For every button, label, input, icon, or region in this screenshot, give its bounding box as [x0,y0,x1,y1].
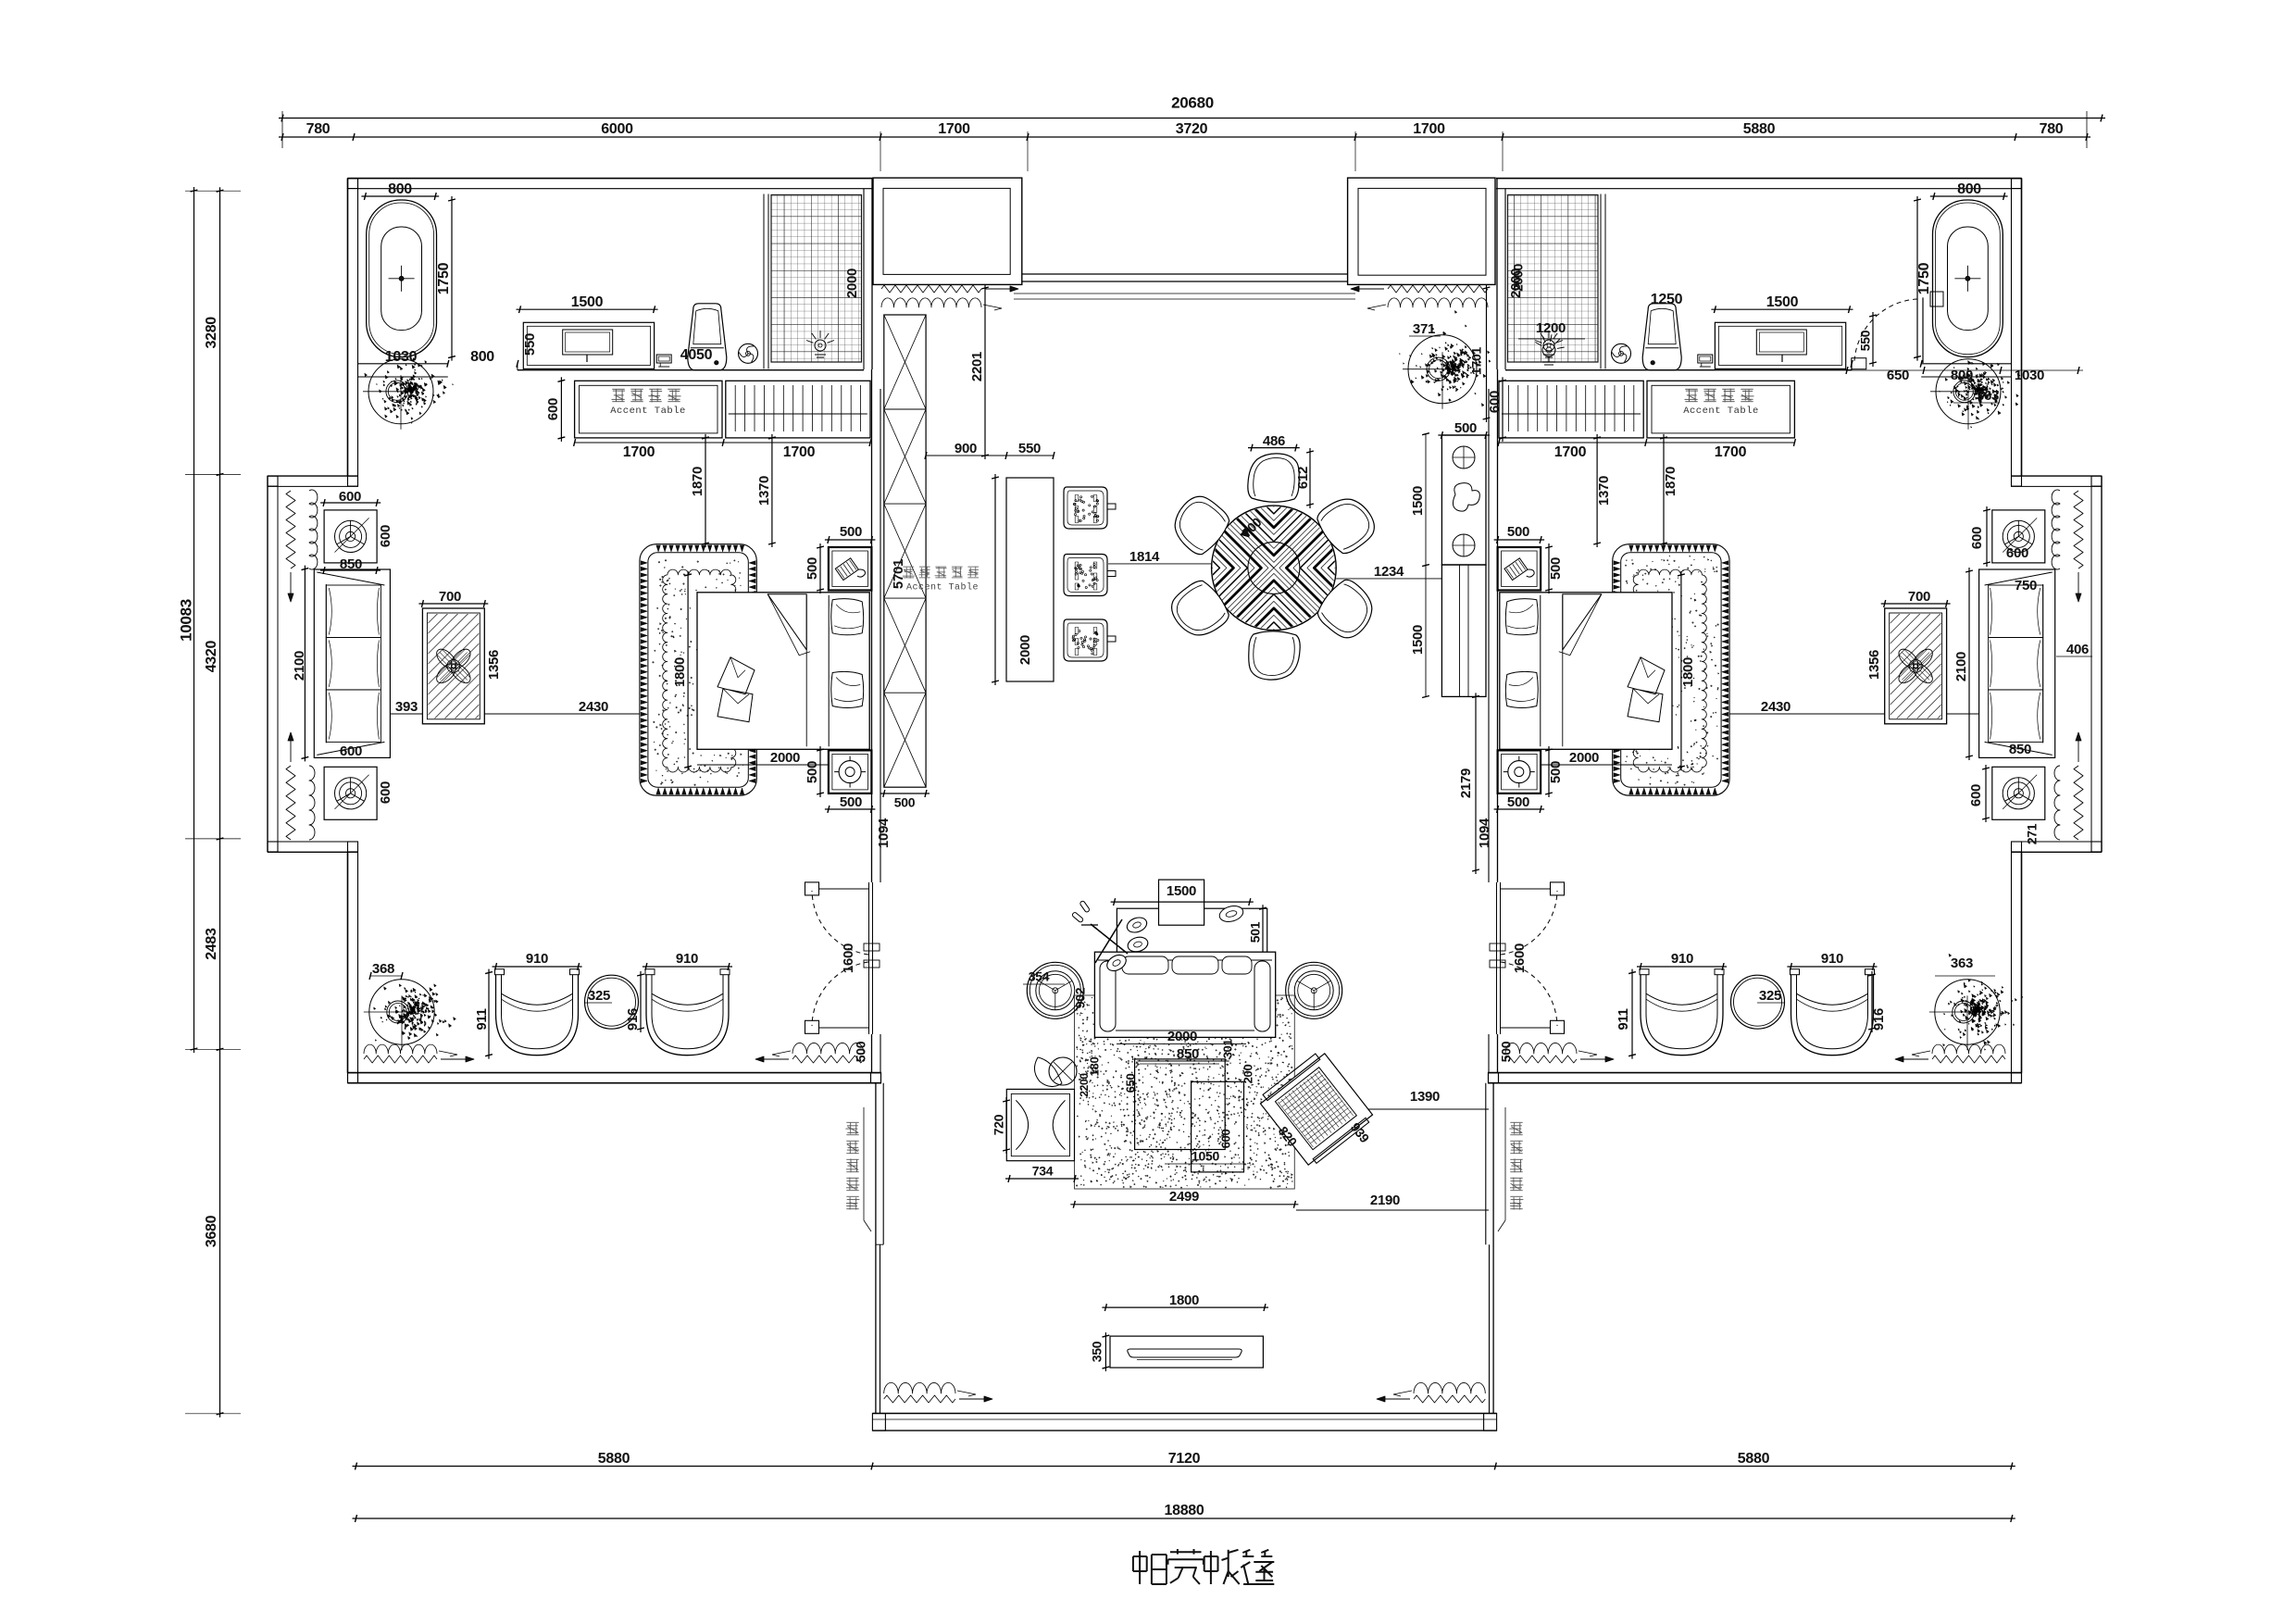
svg-text:1050: 1050 [1192,1149,1219,1164]
svg-text:910: 910 [1821,951,1843,967]
svg-text:500: 500 [840,794,862,810]
svg-text:10083: 10083 [177,599,194,642]
svg-text:1750: 1750 [1916,262,1932,294]
svg-text:550: 550 [1858,330,1873,351]
svg-text:2430: 2430 [1761,699,1791,715]
svg-text:7120: 7120 [1168,1451,1201,1467]
svg-text:2499: 2499 [1169,1189,1199,1205]
svg-text:916: 916 [1871,1008,1887,1031]
svg-text:1234: 1234 [1374,564,1404,580]
svg-text:800: 800 [388,181,412,197]
svg-text:911: 911 [1616,1008,1631,1030]
svg-text:1356: 1356 [1866,650,1882,680]
svg-text:3680: 3680 [204,1215,219,1247]
svg-text:486: 486 [1263,433,1285,449]
svg-text:500: 500 [854,1041,868,1062]
svg-text:1750: 1750 [436,262,452,294]
svg-text:3280: 3280 [204,317,219,349]
svg-text:600: 600 [1487,391,1503,413]
svg-text:1250: 1250 [1651,292,1683,307]
svg-text:700: 700 [439,589,461,605]
svg-text:916: 916 [625,1008,641,1031]
svg-text:1870: 1870 [1663,467,1678,496]
svg-text:371: 371 [1413,321,1435,337]
svg-text:500: 500 [805,761,820,783]
svg-text:600: 600 [378,781,393,804]
svg-text:900: 900 [955,441,977,456]
svg-text:612: 612 [1295,467,1311,489]
svg-text:500: 500 [1548,761,1564,783]
svg-text:1800: 1800 [1169,1293,1199,1308]
svg-text:2000: 2000 [844,269,860,298]
svg-text:600: 600 [340,743,362,759]
svg-text:Accent Table: Accent Table [906,582,979,593]
svg-text:2190: 2190 [1370,1193,1400,1208]
svg-text:500: 500 [894,795,916,810]
svg-text:1701: 1701 [1469,347,1484,375]
svg-text:1370: 1370 [1596,476,1612,506]
svg-text:500: 500 [1454,420,1477,436]
svg-text:1500: 1500 [1167,883,1196,899]
svg-text:393: 393 [395,699,418,715]
svg-text:500: 500 [840,524,862,540]
svg-text:2483: 2483 [204,928,219,960]
svg-text:500: 500 [805,557,820,580]
svg-text:600: 600 [1218,1130,1232,1149]
svg-text:500: 500 [1507,794,1529,810]
svg-text:1700: 1700 [783,444,816,460]
svg-text:1700: 1700 [1715,444,1747,460]
svg-text:734: 734 [1032,1164,1054,1179]
svg-text:2100: 2100 [1953,652,1969,681]
svg-text:4050: 4050 [680,347,713,363]
svg-text:911: 911 [474,1008,490,1030]
svg-text:1030: 1030 [2015,368,2044,383]
svg-text:20680: 20680 [1171,94,1214,111]
svg-text:1700: 1700 [1413,121,1445,137]
svg-text:600: 600 [545,398,561,420]
svg-text:5701: 5701 [891,559,906,589]
svg-text:600: 600 [1968,784,1984,806]
svg-text:Accent Table: Accent Table [1683,406,1759,417]
svg-text:650: 650 [1887,368,1909,383]
svg-text:1094: 1094 [876,818,892,848]
svg-text:1700: 1700 [938,121,970,137]
svg-text:902: 902 [1073,987,1088,1008]
svg-text:1500: 1500 [1766,294,1799,310]
svg-text:350: 350 [1090,1341,1104,1362]
svg-text:1700: 1700 [623,444,655,460]
svg-text:1870: 1870 [690,467,705,496]
svg-text:363: 363 [1977,388,1999,404]
svg-text:325: 325 [588,988,610,1004]
svg-text:2000: 2000 [1017,635,1033,665]
svg-text:1500: 1500 [1410,625,1426,655]
svg-text:354: 354 [1029,969,1050,984]
svg-text:910: 910 [526,951,548,967]
svg-text:5880: 5880 [1738,1451,1770,1467]
svg-text:1600: 1600 [1512,943,1528,973]
svg-text:2000: 2000 [1511,264,1526,292]
svg-text:1200: 1200 [1536,320,1566,336]
svg-text:800: 800 [1951,368,1973,383]
svg-text:1700: 1700 [1554,444,1587,460]
svg-text:5880: 5880 [1743,121,1776,137]
svg-text:2000: 2000 [1167,1029,1197,1044]
svg-text:650: 650 [1123,1074,1137,1093]
svg-text:780: 780 [306,121,331,137]
svg-text:501: 501 [1248,921,1263,943]
svg-text:2201: 2201 [969,352,985,381]
svg-text:910: 910 [676,951,698,967]
svg-text:4320: 4320 [204,641,219,673]
svg-text:180: 180 [1087,1057,1101,1077]
svg-text:3720: 3720 [1176,121,1208,137]
svg-text:301: 301 [1220,1040,1234,1059]
svg-text:500: 500 [1499,1041,1514,1062]
svg-text:600: 600 [2006,545,2028,561]
svg-text:2000: 2000 [770,750,800,766]
svg-text:368: 368 [372,961,394,977]
svg-text:780: 780 [2040,121,2064,137]
svg-text:406: 406 [2066,642,2089,657]
svg-text:271: 271 [2025,823,2040,844]
svg-text:850: 850 [2009,742,2031,757]
svg-text:2000: 2000 [1569,750,1599,766]
svg-text:700: 700 [1908,589,1930,605]
svg-text:200: 200 [1241,1065,1254,1084]
svg-text:1370: 1370 [756,476,772,506]
svg-text:800: 800 [1957,181,1981,197]
svg-text:6000: 6000 [601,121,633,137]
svg-text:1800: 1800 [672,657,688,687]
svg-text:1356: 1356 [486,650,502,680]
svg-text:1814: 1814 [1129,549,1160,565]
svg-text:1390: 1390 [1410,1089,1440,1105]
svg-text:550: 550 [1018,441,1041,456]
svg-text:Accent Table: Accent Table [610,406,686,417]
svg-text:550: 550 [522,333,538,356]
svg-text:910: 910 [1671,951,1693,967]
svg-text:1800: 1800 [1680,657,1696,687]
svg-text:720: 720 [992,1114,1006,1135]
svg-text:600: 600 [378,525,393,547]
svg-text:5880: 5880 [598,1451,630,1467]
svg-text:600: 600 [1969,527,1985,549]
svg-text:1500: 1500 [1410,486,1426,516]
svg-text:18880: 18880 [1165,1503,1204,1518]
svg-text:325: 325 [1759,988,1781,1004]
svg-text:2430: 2430 [579,699,608,715]
svg-text:2179: 2179 [1458,768,1474,798]
svg-text:1600: 1600 [841,943,856,973]
svg-text:363: 363 [1951,956,1973,971]
svg-text:500: 500 [1548,557,1564,580]
svg-text:750: 750 [2015,578,2037,593]
svg-text:1094: 1094 [1477,818,1492,848]
svg-text:800: 800 [470,349,494,365]
svg-text:500: 500 [1507,524,1529,540]
svg-text:1030: 1030 [385,349,418,365]
svg-text:1500: 1500 [571,294,604,310]
